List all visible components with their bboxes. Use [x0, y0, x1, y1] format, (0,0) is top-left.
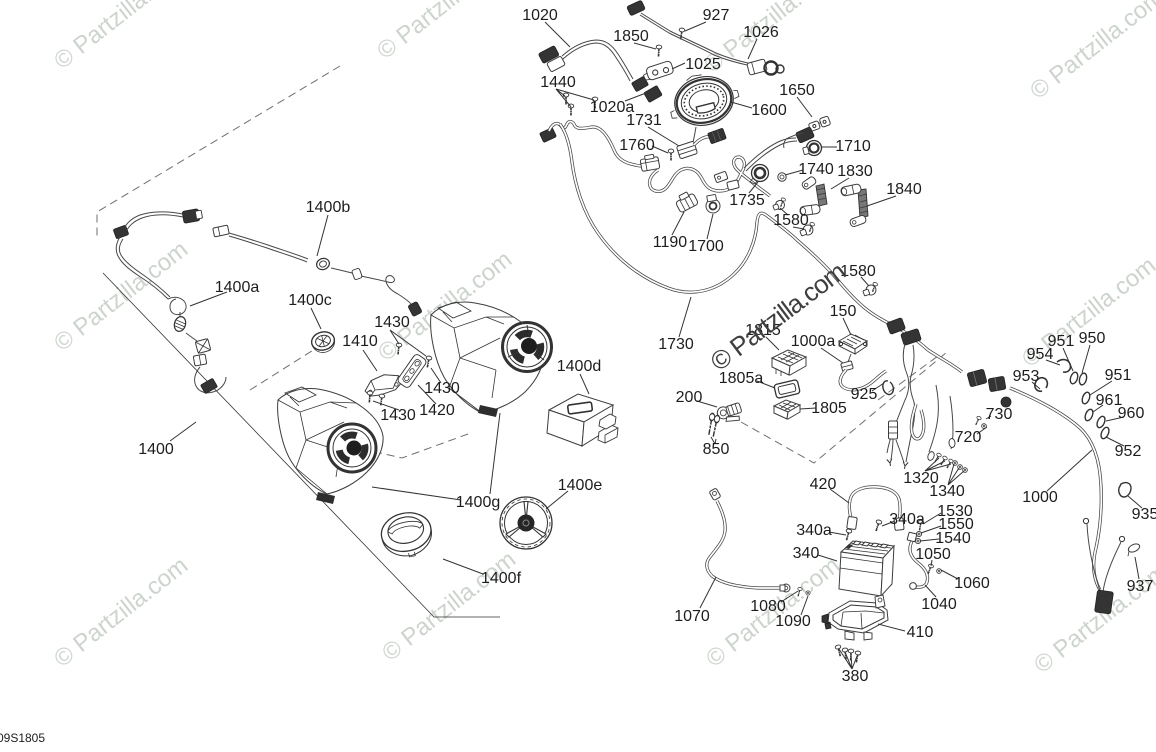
svg-text:1400c: 1400c	[288, 292, 332, 309]
svg-text:1735: 1735	[729, 192, 765, 209]
svg-text:340: 340	[793, 545, 820, 562]
svg-text:1580: 1580	[773, 212, 809, 229]
svg-text:950: 950	[1079, 330, 1106, 347]
svg-text:1430: 1430	[374, 314, 410, 331]
svg-text:1730: 1730	[658, 336, 694, 353]
svg-text:1700: 1700	[688, 238, 724, 255]
svg-text:1400e: 1400e	[558, 477, 603, 494]
svg-text:1000a: 1000a	[791, 333, 836, 350]
svg-text:1410: 1410	[342, 333, 378, 350]
svg-text:340a: 340a	[796, 522, 832, 539]
svg-text:1090: 1090	[775, 613, 811, 630]
svg-text:1190: 1190	[653, 234, 688, 251]
svg-text:1440: 1440	[540, 74, 576, 91]
svg-text:730: 730	[986, 406, 1013, 423]
svg-text:1731: 1731	[626, 112, 662, 129]
svg-text:1710: 1710	[835, 138, 871, 155]
svg-text:1400b: 1400b	[306, 199, 351, 216]
svg-text:380: 380	[842, 668, 869, 685]
svg-text:1600: 1600	[751, 102, 787, 119]
svg-text:1400: 1400	[138, 441, 174, 458]
svg-text:1026: 1026	[743, 24, 779, 41]
svg-text:410: 410	[907, 624, 934, 641]
svg-text:1650: 1650	[779, 82, 815, 99]
svg-text:1830: 1830	[837, 163, 873, 180]
svg-text:1400d: 1400d	[557, 358, 602, 375]
svg-text:1025: 1025	[685, 56, 721, 73]
svg-text:1020: 1020	[522, 7, 558, 24]
svg-text:937: 937	[1127, 578, 1154, 595]
svg-text:1740: 1740	[798, 161, 834, 178]
svg-text:1050: 1050	[915, 546, 951, 563]
svg-text:1060: 1060	[954, 575, 990, 592]
svg-text:1040: 1040	[921, 596, 957, 613]
svg-text:935: 935	[1132, 506, 1156, 523]
svg-text:720: 720	[955, 429, 982, 446]
svg-text:1070: 1070	[674, 608, 710, 625]
svg-text:1850: 1850	[613, 28, 649, 45]
svg-text:200: 200	[676, 389, 703, 406]
svg-text:1430: 1430	[424, 380, 460, 397]
svg-text:1760: 1760	[619, 137, 655, 154]
svg-text:1420: 1420	[419, 402, 455, 419]
svg-text:1400g: 1400g	[456, 494, 501, 511]
svg-text:420: 420	[810, 476, 837, 493]
svg-text:1805: 1805	[811, 400, 847, 417]
svg-text:1540: 1540	[935, 530, 971, 547]
svg-text:850: 850	[703, 441, 730, 458]
svg-text:952: 952	[1115, 443, 1142, 460]
svg-text:927: 927	[703, 7, 730, 24]
svg-text:953: 953	[1013, 368, 1040, 385]
svg-text:954: 954	[1027, 346, 1054, 363]
svg-text:1840: 1840	[886, 181, 922, 198]
svg-text:150: 150	[830, 303, 857, 320]
svg-text:1400a: 1400a	[215, 279, 260, 296]
svg-text:960: 960	[1118, 405, 1145, 422]
svg-text:925: 925	[851, 386, 878, 403]
svg-text:1430: 1430	[380, 407, 416, 424]
svg-text:1400f: 1400f	[481, 570, 522, 587]
svg-text:340a: 340a	[889, 511, 925, 528]
svg-text:09S1805: 09S1805	[0, 731, 45, 745]
svg-text:951: 951	[1105, 367, 1132, 384]
svg-text:1000: 1000	[1022, 489, 1058, 506]
svg-text:1340: 1340	[929, 483, 965, 500]
